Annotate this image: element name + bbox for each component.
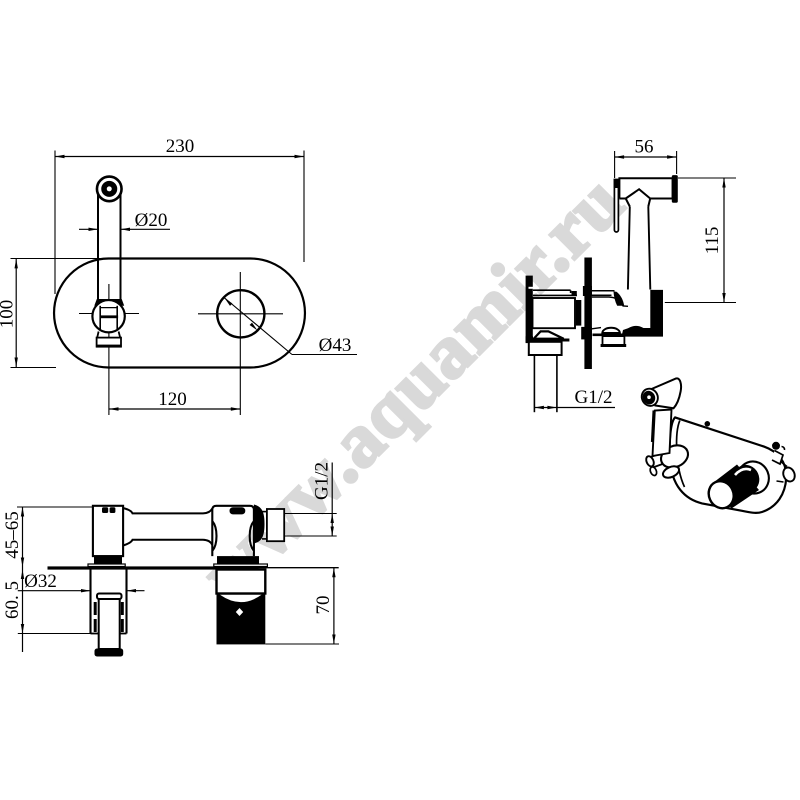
svg-text:115: 115: [702, 227, 723, 255]
svg-text:230: 230: [166, 136, 195, 157]
svg-text:Ø20: Ø20: [135, 210, 168, 231]
svg-text:60. 5: 60. 5: [2, 581, 23, 619]
svg-text:45–65: 45–65: [2, 511, 23, 559]
svg-text:G1/2: G1/2: [575, 387, 613, 408]
svg-text:G1/2: G1/2: [312, 462, 333, 500]
svg-text:Ø32: Ø32: [24, 571, 57, 592]
svg-text:Ø43: Ø43: [319, 335, 352, 356]
svg-text:56: 56: [635, 137, 654, 158]
svg-text:120: 120: [158, 389, 187, 410]
svg-text:100: 100: [0, 300, 18, 329]
svg-text:70: 70: [313, 596, 334, 615]
